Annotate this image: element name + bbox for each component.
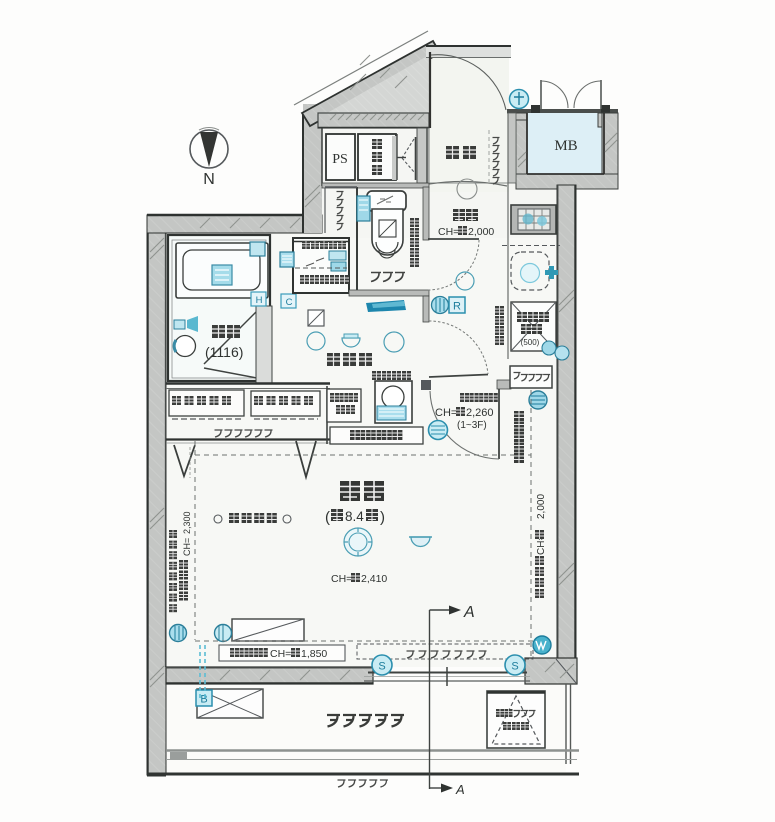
svg-text:S: S [378,661,385,673]
svg-text:(500): (500) [521,338,540,347]
svg-text:1,850: 1,850 [301,648,327,660]
svg-text:(1~3F): (1~3F) [457,420,487,431]
svg-text:(1116): (1116) [205,344,243,360]
svg-text:S: S [511,661,518,673]
svg-text:CH=: CH= [182,538,192,556]
svg-text:2,300: 2,300 [182,511,192,534]
svg-text:CH=: CH= [438,226,459,238]
svg-text:2,000: 2,000 [536,494,547,519]
svg-text:CH=: CH= [435,407,457,419]
svg-text:CH=: CH= [270,648,291,660]
svg-text:PS: PS [332,152,348,167]
svg-text:H: H [256,295,263,306]
svg-text:(: ( [325,509,330,526]
svg-text:8.4: 8.4 [345,509,364,524]
svg-text:2,410: 2,410 [361,573,387,585]
svg-text:MB: MB [554,138,577,154]
svg-text:A: A [455,782,465,797]
svg-text:C: C [286,297,293,308]
svg-text:B: B [200,694,207,706]
svg-text:A: A [463,604,475,621]
svg-text:N: N [203,171,215,188]
svg-text:2,260: 2,260 [466,407,494,419]
svg-text:CH=: CH= [331,573,352,585]
svg-text:R: R [453,301,461,313]
svg-text:2,000: 2,000 [468,226,494,238]
svg-text:): ) [380,509,385,526]
